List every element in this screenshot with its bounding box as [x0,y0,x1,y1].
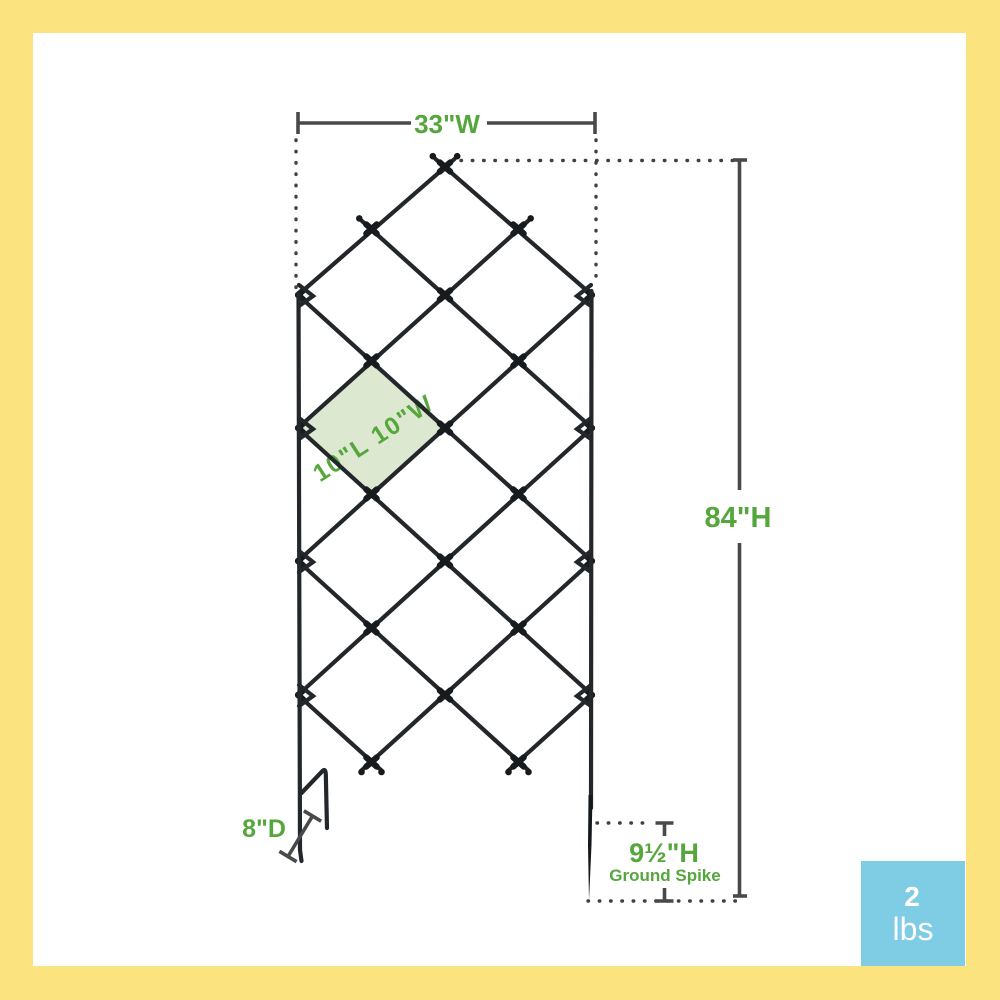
svg-text:8"D: 8"D [242,815,286,843]
svg-text:33"W: 33"W [414,109,480,139]
svg-text:Ground Spike: Ground Spike [609,866,720,885]
svg-text:9½"H: 9½"H [629,838,699,868]
svg-text:lbs: lbs [893,911,934,947]
svg-text:84"H: 84"H [705,502,772,534]
svg-text:2: 2 [904,881,920,912]
